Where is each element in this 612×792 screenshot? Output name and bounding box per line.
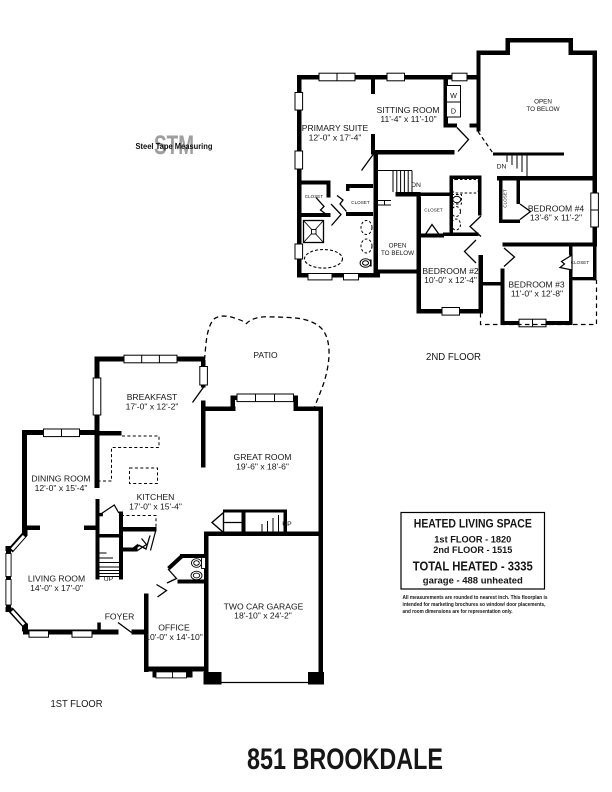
svg-text:DINING ROOM: DINING ROOM (31, 474, 90, 484)
svg-text:17'-0" x 12'-2": 17'-0" x 12'-2" (126, 402, 179, 412)
svg-text:CLOSET: CLOSET (351, 200, 370, 205)
svg-text:CLOSET: CLOSET (503, 189, 508, 208)
svg-text:851 BROOKDALE: 851 BROOKDALE (247, 743, 443, 776)
svg-text:CLOSET: CLOSET (571, 260, 590, 265)
svg-text:TO BELOW: TO BELOW (381, 250, 414, 257)
svg-text:12'-0" x 17'-4": 12'-0" x 17'-4" (309, 133, 362, 143)
svg-text:12'-0" x 15'-4": 12'-0" x 15'-4" (35, 483, 88, 493)
svg-text:DN: DN (411, 182, 421, 189)
svg-text:1ST FLOOR: 1ST FLOOR (51, 698, 103, 710)
svg-text:W: W (450, 91, 457, 100)
svg-text:2nd FLOOR - 1515: 2nd FLOOR - 1515 (433, 545, 513, 556)
svg-text:10'-0" x 12'-4": 10'-0" x 12'-4" (424, 275, 477, 285)
svg-text:UP: UP (282, 521, 292, 528)
svg-text:FOYER: FOYER (105, 612, 135, 622)
svg-text:10'-0" x 14'-10": 10'-0" x 14'-10" (145, 632, 203, 642)
svg-text:CLOSET: CLOSET (305, 194, 324, 199)
svg-text:garage - 488 unheated: garage - 488 unheated (423, 576, 523, 587)
svg-text:UP: UP (104, 576, 114, 583)
svg-text:DN: DN (497, 164, 507, 171)
svg-text:TO BELOW: TO BELOW (526, 106, 559, 113)
svg-text:OFFICE: OFFICE (158, 623, 190, 633)
svg-text:LIVING ROOM: LIVING ROOM (28, 574, 85, 584)
svg-text:19'-6" x 18'-6": 19'-6" x 18'-6" (236, 462, 289, 472)
svg-text:2ND FLOOR: 2ND FLOOR (426, 351, 481, 363)
svg-text:11'-4" x 11'-10": 11'-4" x 11'-10" (380, 114, 436, 124)
svg-text:HEATED LIVING SPACE: HEATED LIVING SPACE (414, 517, 532, 531)
svg-text:14'-0" x 17'-0": 14'-0" x 17'-0" (30, 583, 83, 593)
svg-text:BREAKFAST: BREAKFAST (127, 392, 178, 402)
svg-text:GREAT ROOM: GREAT ROOM (234, 452, 292, 462)
svg-text:and room dimensions are for re: and room dimensions are for representati… (403, 609, 513, 615)
svg-text:All measurements are rounded t: All measurements are rounded to nearest … (403, 595, 548, 601)
svg-text:17'-0" x 15'-4": 17'-0" x 15'-4" (129, 502, 182, 512)
svg-text:18'-10" x 24'-2": 18'-10" x 24'-2" (234, 611, 292, 621)
svg-text:Steel Tape Measuring: Steel Tape Measuring (136, 142, 213, 151)
svg-text:TOTAL HEATED - 3335: TOTAL HEATED - 3335 (413, 560, 533, 574)
svg-text:D: D (451, 107, 456, 116)
svg-text:intended for marketing brochur: intended for marketing brochures so wind… (403, 602, 546, 608)
svg-text:CLOSET: CLOSET (424, 208, 443, 213)
svg-text:OPEN: OPEN (534, 99, 552, 106)
svg-text:1st FLOOR - 1820: 1st FLOOR - 1820 (434, 535, 511, 546)
svg-text:13'-6" x 11'-2": 13'-6" x 11'-2" (530, 213, 582, 223)
svg-text:KITCHEN: KITCHEN (137, 492, 175, 502)
svg-text:PATIO: PATIO (253, 350, 278, 360)
svg-text:11'-0" x 12'-8": 11'-0" x 12'-8" (511, 289, 563, 299)
svg-text:OPEN: OPEN (389, 243, 407, 250)
svg-text:PRIMARY SUITE: PRIMARY SUITE (302, 123, 369, 133)
